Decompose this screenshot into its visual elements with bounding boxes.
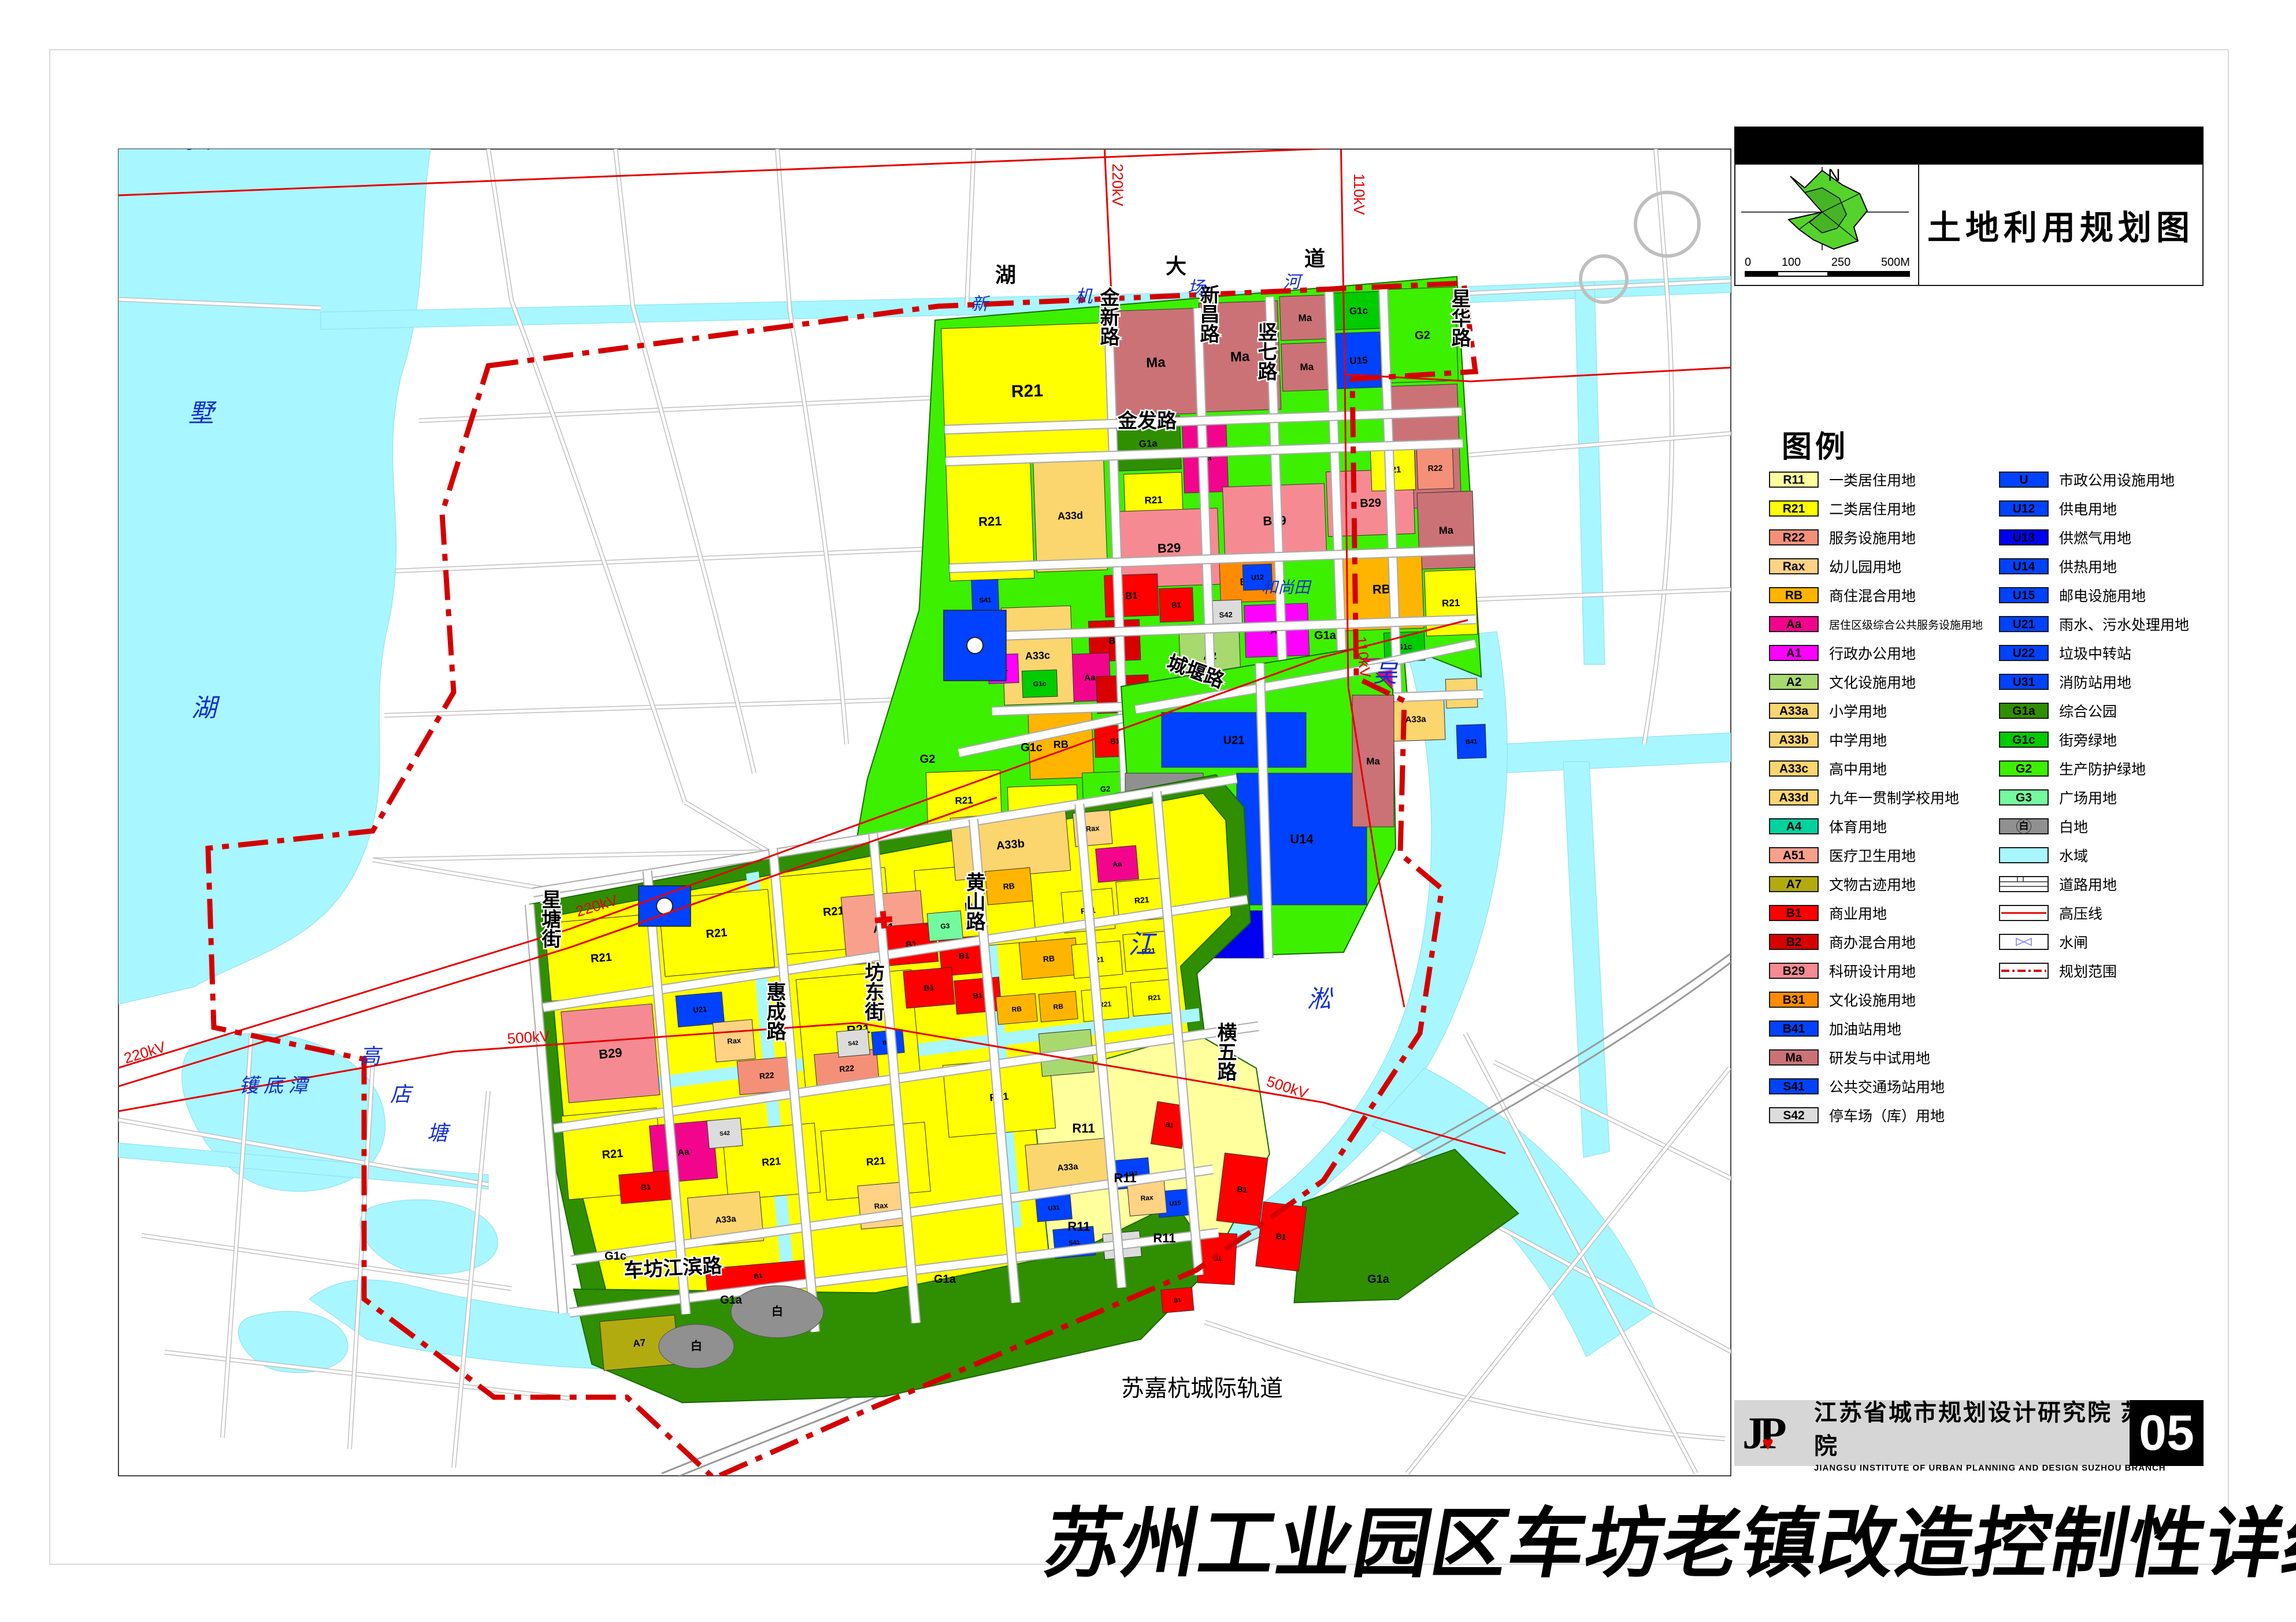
parcel-code: R11 xyxy=(1067,1219,1090,1234)
legend-column-left: R11一类居住用地R21二类居住用地R22服务设施用地Rax幼儿园用地RB商住混… xyxy=(1769,465,1983,1130)
parcel: RB xyxy=(1019,938,1078,979)
scale-tick: 0 xyxy=(1745,256,1751,269)
map-label: 塘 xyxy=(427,1122,451,1145)
land-use-map: R21MaMaMaMaG1cG2U15MaR21A33dG1aAaR21B29B… xyxy=(49,51,1737,1478)
parcel-code: A33a xyxy=(1405,714,1426,725)
parcel: Aa xyxy=(1096,845,1139,882)
parcel-code: A33a xyxy=(1057,1161,1079,1173)
legend-label: 公共交通场站用地 xyxy=(1829,1076,1945,1097)
map-label: 道 xyxy=(1304,247,1325,270)
legend-label: 加油站用地 xyxy=(1829,1018,1901,1039)
legend-label: 水域 xyxy=(2059,845,2088,866)
legend-label: 商业用地 xyxy=(1829,903,1887,923)
parcel-code: B1 xyxy=(641,1182,651,1192)
legend-swatch: RB xyxy=(1769,587,1819,603)
parcel: B29 xyxy=(561,1004,660,1103)
parcel-code: A33c xyxy=(1025,649,1051,662)
legend-swatch: B29 xyxy=(1769,963,1819,979)
parcel-code: R21 xyxy=(1442,597,1460,609)
legend-swatch: R21 xyxy=(1769,500,1819,517)
map-label: 江 xyxy=(1128,930,1158,959)
legend-row: U13供燃气用地 xyxy=(1999,523,2189,552)
parcel: U14 xyxy=(1237,773,1367,905)
legend-swatch: A7 xyxy=(1769,876,1819,892)
legend-row: S41公共交通场站用地 xyxy=(1769,1072,1983,1101)
parcel-code: G2 xyxy=(1415,329,1430,342)
map-label: 店 xyxy=(390,1083,414,1106)
legend-row: U14供热用地 xyxy=(1999,552,2189,581)
legend-label: 生产防护绿地 xyxy=(2059,758,2146,779)
panel-header-bar xyxy=(1734,127,2204,164)
legend-swatch: A4 xyxy=(1769,818,1819,834)
parcel: Ma xyxy=(1352,695,1394,827)
legend-swatch: Aa xyxy=(1769,616,1819,632)
parcel-code: G1c xyxy=(1033,680,1047,688)
map-label: 高 xyxy=(359,1045,383,1068)
map-label: 500kV xyxy=(507,1027,551,1047)
parcel-code: S42 xyxy=(719,1130,730,1138)
parcel-code: R21 xyxy=(822,904,844,919)
panel-head: N 0100250500M 土地利用规划图 xyxy=(1734,164,2204,286)
parcel-code: B1 xyxy=(1237,1184,1248,1194)
legend-swatch: U21 xyxy=(1999,616,2049,632)
parcel-code: U21 xyxy=(693,1005,707,1015)
parcel: Rax xyxy=(713,1019,755,1062)
parcel-code: A33b xyxy=(996,837,1025,852)
map-label: 110kV xyxy=(1351,173,1368,215)
legend-row: U15邮电设施用地 xyxy=(1999,581,2189,610)
legend-label: 垃圾中转站 xyxy=(2059,643,2131,663)
legend-swatch: R22 xyxy=(1769,529,1819,545)
map-label: 湖 xyxy=(995,263,1016,287)
legend-row: B41加油站用地 xyxy=(1769,1014,1983,1043)
parcel-code: B29 xyxy=(598,1045,622,1061)
substation-icon xyxy=(967,637,983,654)
parcel-code: G3 xyxy=(940,922,950,930)
legend-row: 道路用地 xyxy=(1999,870,2189,899)
parcel-code: R21 xyxy=(761,1155,781,1168)
parcel-code: G1c xyxy=(1349,305,1368,317)
map-label: 新 xyxy=(971,295,991,314)
legend-label: 商住混合用地 xyxy=(1829,585,1916,606)
legend-row: U12供电用地 xyxy=(1999,494,2189,523)
map-label: 横五路 xyxy=(1214,1022,1237,1081)
parcel: G1c xyxy=(1331,291,1386,330)
parcel-code: R21 xyxy=(602,1147,624,1161)
legend-swatch: A33b xyxy=(1769,732,1819,748)
parcel-code: G1a xyxy=(720,1294,743,1306)
parcel-code: G2 xyxy=(1100,785,1111,794)
parcel: G1c xyxy=(1022,670,1058,697)
legend-heading: 图例 xyxy=(1782,422,1849,466)
legend-swatch: R11 xyxy=(1769,472,1819,488)
map-label: 竖七路 xyxy=(1255,322,1277,381)
compass-cell: N 0100250500M xyxy=(1735,165,1919,285)
parcel-code: R22 xyxy=(839,1063,855,1074)
parcel-code: Rax xyxy=(1085,823,1100,833)
parcel: B1 xyxy=(903,967,955,1008)
parcel-code: RB xyxy=(1043,953,1055,964)
legend-swatch: U14 xyxy=(1999,558,2049,574)
map-label: 星华路 xyxy=(1448,288,1471,347)
legend-row: A7文物古迹用地 xyxy=(1769,870,1983,899)
legend-swatch: Rax xyxy=(1769,558,1819,574)
legend-swatch: U31 xyxy=(1999,674,2049,690)
map-label: 墅 xyxy=(188,399,217,428)
parcel: G2 xyxy=(1387,287,1459,383)
parcel-code: U15 xyxy=(1349,355,1368,366)
parcel-code: U21 xyxy=(1223,734,1245,747)
legend-swatch: A33a xyxy=(1769,703,1819,719)
legend-swatch: A2 xyxy=(1769,674,1819,690)
drawing-title: 苏州工业园区车坊老镇改造控制性详细规划 xyxy=(1036,1482,2296,1593)
parcel-code: G1a xyxy=(1314,629,1337,642)
parcel-code: R21 xyxy=(955,795,973,806)
legend-swatch xyxy=(1999,847,2049,863)
map-label: 淞 xyxy=(1307,986,1334,1013)
legend-row: A33b中学用地 xyxy=(1769,725,1983,754)
parcel-code: 白 xyxy=(691,1339,702,1353)
legend-row: Ma研发与中试用地 xyxy=(1769,1043,1983,1072)
parcel-code: G1c xyxy=(1021,741,1043,754)
legend-row: A33a小学用地 xyxy=(1769,696,1983,725)
parcel-code: G2 xyxy=(920,753,936,766)
parcel: R21 xyxy=(941,323,1114,459)
legend-swatch xyxy=(1999,876,2049,892)
legend-row: S42停车场（库）用地 xyxy=(1769,1101,1983,1130)
legend-label: 小学用地 xyxy=(1829,700,1887,721)
parcel-code: R11 xyxy=(1072,1121,1095,1135)
legend-label: 科研设计用地 xyxy=(1829,960,1916,981)
parcel: Ma xyxy=(1281,342,1333,391)
north-label: N xyxy=(1828,166,1841,185)
parcel: RB xyxy=(985,867,1033,905)
legend-row: 规划范围 xyxy=(1999,956,2189,985)
parcel: B1 xyxy=(1104,574,1159,617)
parcel: U21 xyxy=(1162,712,1306,767)
legend-swatch: B31 xyxy=(1769,992,1819,1008)
legend-row: U22垃圾中转站 xyxy=(1999,639,2189,667)
legend-swatch: G2 xyxy=(1999,760,2049,777)
parcel-code: A33a xyxy=(715,1214,737,1226)
parcel-code: G1a xyxy=(1138,438,1158,450)
parcel-code: R21 xyxy=(590,951,612,966)
parcel-code: Rax xyxy=(874,1201,889,1211)
legend-label: 白地 xyxy=(2059,816,2088,837)
parcel-code: B1 xyxy=(973,991,983,1000)
legend-label: 供热用地 xyxy=(2059,556,2117,577)
map-label: 镬 底 潭 xyxy=(239,1075,311,1097)
legend-row: U21雨水、污水处理用地 xyxy=(1999,610,2189,639)
parcel-code: Ma xyxy=(1230,349,1250,365)
parcel: R21 xyxy=(1425,570,1478,636)
legend-swatch: B1 xyxy=(1769,905,1819,921)
parcel-code: B41 xyxy=(1466,738,1478,746)
parcel-code: B1 xyxy=(754,1272,763,1280)
parcel-code: B1 xyxy=(1165,1122,1174,1130)
parcel: Ma xyxy=(1279,295,1331,340)
parcel-code: R21 xyxy=(978,514,1002,529)
legend-swatch: U22 xyxy=(1999,645,2049,661)
parcel-code: B1 xyxy=(1171,600,1181,610)
legend-row: A2文化设施用地 xyxy=(1769,667,1983,696)
map-title: 土地利用规划图 xyxy=(1927,201,2194,249)
legend-row: 高压线 xyxy=(1999,899,2189,927)
map-label: 机 xyxy=(1075,287,1093,306)
map-label: 惠成路 xyxy=(763,982,786,1041)
map-label: 金发路 xyxy=(1117,410,1177,432)
compass-rose-icon: N xyxy=(1735,165,1917,251)
legend-label: 中学用地 xyxy=(1829,729,1887,750)
parcel-code: Ma xyxy=(1438,524,1454,536)
legend-label: 行政办公用地 xyxy=(1829,643,1916,663)
parcel-code: B1 xyxy=(1275,1231,1287,1242)
legend-label: 停车场（库）用地 xyxy=(1829,1105,1945,1126)
parcel: B1 xyxy=(1161,1287,1194,1313)
parcel-code: U14 xyxy=(1290,832,1314,847)
legend-label: 幼儿园用地 xyxy=(1829,556,1901,577)
parcel-code: Rax xyxy=(727,1036,742,1046)
legend-label: 体育用地 xyxy=(1829,816,1887,837)
legend-row: G1c街旁绿地 xyxy=(1999,725,2189,754)
legend-row: U31消防站用地 xyxy=(1999,667,2189,696)
legend-swatch: 白 xyxy=(1999,818,2049,834)
legend-swatch: U xyxy=(1999,472,2049,488)
title-block-panel: N 0100250500M 土地利用规划图 图例 R11一类居住用地R21二类居… xyxy=(1734,127,2204,1468)
parcel: S42 xyxy=(837,1029,870,1057)
parcel: Ma xyxy=(1417,491,1475,569)
parcel: RB xyxy=(996,993,1037,1025)
parcel: A33d xyxy=(1033,459,1108,572)
parcel: G3 xyxy=(927,911,963,941)
parcel-code: A33d xyxy=(1058,510,1084,522)
map-label: 和尚田 xyxy=(1262,579,1312,597)
parcel-code: R22 xyxy=(759,1070,774,1081)
legend-row: RB商住混合用地 xyxy=(1769,581,1983,610)
parcel-code: R11 xyxy=(1153,1231,1175,1245)
parcel-code: RB xyxy=(1003,881,1015,892)
legend-label: 供电用地 xyxy=(2059,498,2117,519)
parcel-code: Ma xyxy=(1146,355,1166,371)
scale-ticks: 0100250500M xyxy=(1745,256,1910,269)
legend-swatch: G1a xyxy=(1999,703,2049,719)
parcel: B1 xyxy=(1159,588,1194,622)
parcel-code: RB xyxy=(1053,1002,1064,1011)
legend-label: 文化设施用地 xyxy=(1829,671,1916,692)
plan-sheet: { "title_block": { "map_title": "土地利用规划图… xyxy=(0,0,2296,1622)
legend-row: B2商办混合用地 xyxy=(1769,927,1983,956)
parcel-code: U31 xyxy=(1048,1204,1060,1212)
parcel-code: B1 xyxy=(1174,1297,1182,1304)
legend-swatch: S42 xyxy=(1769,1107,1819,1123)
parcel-code: U15 xyxy=(1169,1200,1181,1208)
legend-label: 广场用地 xyxy=(2059,787,2117,808)
legend-row: 白白地 xyxy=(1999,812,2189,841)
map-label: 吴 xyxy=(1373,661,1399,688)
parcel-code: 白 xyxy=(771,1304,783,1318)
parcel-code: B1 xyxy=(1125,590,1138,602)
parcel-code: G1a xyxy=(934,1273,956,1286)
parcel-code: R21 xyxy=(706,926,728,941)
legend-label: 邮电设施用地 xyxy=(2059,585,2146,606)
map-label: 星塘街 xyxy=(539,889,562,948)
parcel: S42 xyxy=(707,1118,743,1149)
parcel-code: Ma xyxy=(1366,756,1380,767)
legend-swatch: A33c xyxy=(1769,760,1819,777)
legend-swatch xyxy=(1999,905,2049,921)
legend-swatch: B2 xyxy=(1769,934,1819,950)
map-label: 220kV xyxy=(1109,164,1126,206)
parcel-code: R21 xyxy=(1148,993,1161,1003)
legend-label: 文化设施用地 xyxy=(1829,989,1916,1010)
scale-tick: 250 xyxy=(1831,256,1850,269)
parcel-code: Aa xyxy=(1084,673,1096,683)
legend-row: A33d九年一贯制学校用地 xyxy=(1769,783,1983,812)
legend-label: 研发与中试用地 xyxy=(1829,1047,1930,1068)
legend-label: 水闸 xyxy=(2059,931,2088,952)
legend-label: 高压线 xyxy=(2059,903,2102,923)
legend-label: 医疗卫生用地 xyxy=(1829,845,1916,866)
scale-tick: 100 xyxy=(1782,256,1801,269)
parcel: B1 xyxy=(1216,1153,1268,1226)
legend-swatch: B41 xyxy=(1769,1020,1819,1037)
institute-logo: JP ♥ xyxy=(1742,1407,1806,1459)
parcel-code: Aa xyxy=(677,1147,690,1158)
legend-swatch: U13 xyxy=(1999,529,2049,545)
legend-swatch: U15 xyxy=(1999,587,2049,603)
parcel: A33a xyxy=(1386,697,1445,741)
parcel-code: S42 xyxy=(848,1040,859,1048)
legend-swatch: S41 xyxy=(1769,1078,1819,1094)
legend-label: 道路用地 xyxy=(2059,874,2117,894)
legend-label: 居住区级综合公共服务设施用地 xyxy=(1829,617,1983,632)
parcel-code: R21 xyxy=(1011,381,1043,402)
legend-row: Aa居住区级综合公共服务设施用地 xyxy=(1769,610,1983,639)
legend-label: 综合公园 xyxy=(2059,700,2117,721)
legend-swatch: Ma xyxy=(1769,1049,1819,1066)
parcel-code: B29 xyxy=(1360,496,1381,510)
legend-label: 商办混合用地 xyxy=(1829,931,1916,952)
parcel-code: Aa xyxy=(1112,859,1123,868)
parcel-code: RB xyxy=(1011,1005,1022,1014)
legend-row: A1行政办公用地 xyxy=(1769,639,1983,667)
parcel: B1 xyxy=(619,1171,673,1204)
legend-row: G3广场用地 xyxy=(1999,783,2189,812)
legend-row: 水闸 xyxy=(1999,927,2189,956)
scale-tick: 500M xyxy=(1881,256,1910,269)
page-number: 05 xyxy=(2130,1400,2204,1466)
parcel-code: G1a xyxy=(1367,1273,1390,1286)
parcel-code: R21 xyxy=(1144,494,1163,506)
parcel-code: Ma xyxy=(1298,312,1312,324)
map-label: 坊东街 xyxy=(862,962,885,1021)
parcel-code: B29 xyxy=(1157,540,1181,555)
parcel-code: R21 xyxy=(1134,894,1149,905)
legend-row: A4体育用地 xyxy=(1769,812,1983,841)
parcel-code: B1 xyxy=(923,982,934,993)
legend-label: 九年一贯制学校用地 xyxy=(1829,787,1959,808)
legend-row: R11一类居住用地 xyxy=(1769,465,1983,494)
parcel-code: B1 xyxy=(958,951,969,961)
legend-label: 规划范围 xyxy=(2059,960,2117,981)
legend-row: G2生产防护绿地 xyxy=(1999,754,2189,783)
parcel: R21 xyxy=(1081,987,1129,1022)
map-label: 独 xyxy=(186,125,213,154)
parcel: R22 xyxy=(1416,447,1453,489)
map-label: 苏嘉杭城际轨道 xyxy=(1121,1376,1283,1401)
legend-label: 一类居住用地 xyxy=(1829,469,1916,490)
legend-swatch xyxy=(1999,934,2049,950)
legend-swatch xyxy=(1999,963,2049,979)
legend-label: 市政公用设施用地 xyxy=(2059,469,2175,490)
scale-bar-segments xyxy=(1745,271,1910,277)
legend-swatch: A33d xyxy=(1769,789,1819,806)
legend-row: R22服务设施用地 xyxy=(1769,523,1983,552)
legend-label: 雨水、污水处理用地 xyxy=(2059,614,2189,634)
parcel-code: RB xyxy=(1372,582,1391,597)
parcel-code: S42 xyxy=(1219,610,1233,619)
legend-label: 服务设施用地 xyxy=(1829,527,1916,548)
legend-row: B31文化设施用地 xyxy=(1769,985,1983,1014)
legend-row: R21二类居住用地 xyxy=(1769,494,1983,523)
parcel-code: Ma xyxy=(1300,361,1314,373)
legend-row: 水域 xyxy=(1999,841,2189,870)
legend-label: 文物古迹用地 xyxy=(1829,874,1916,894)
legend-label: 供燃气用地 xyxy=(2059,527,2131,548)
title-cell: 土地利用规划图 xyxy=(1919,165,2202,285)
parcel-code: R22 xyxy=(1427,463,1442,473)
legend-swatch: A51 xyxy=(1769,847,1819,863)
legend-row: U市政公用设施用地 xyxy=(1999,465,2189,494)
map-label: 黄山路 xyxy=(963,872,985,931)
legend-row: A51医疗卫生用地 xyxy=(1769,841,1983,870)
map-label: 金新路 xyxy=(1097,287,1120,346)
panel-footer: JP ♥ 江苏省城市规划设计研究院 苏州分院 JIANGSU INSTITUTE… xyxy=(1734,1400,2204,1466)
parcel: Ma xyxy=(1111,308,1200,416)
map-label: 场 xyxy=(1188,279,1207,298)
parcel-code: A7 xyxy=(633,1337,646,1349)
logo-heart-icon: ♥ xyxy=(1762,1432,1774,1455)
legend-row: B29科研设计用地 xyxy=(1769,956,1983,985)
parcel-code: R11 xyxy=(1114,1171,1136,1185)
map-label: 大 xyxy=(1166,254,1186,278)
parcel: RB xyxy=(1038,991,1078,1022)
legend-swatch: U12 xyxy=(1999,500,2049,517)
parcel-code: S41 xyxy=(979,596,992,604)
map-canvas: R21MaMaMaMaG1cG2U15MaR21A33dG1aAaR21B29B… xyxy=(49,51,1737,1478)
parcel-code: Rax xyxy=(1140,1193,1153,1202)
legend-row: A33c高中用地 xyxy=(1769,754,1983,783)
legend-swatch: G1c xyxy=(1999,732,2049,748)
legend-row: Rax幼儿园用地 xyxy=(1769,552,1983,581)
legend-column-right: U市政公用设施用地U12供电用地U13供燃气用地U14供热用地U15邮电设施用地… xyxy=(1999,465,2189,985)
legend-label: 街旁绿地 xyxy=(2059,729,2117,750)
legend-label: 二类居住用地 xyxy=(1829,498,1916,519)
map-label: 河 xyxy=(1283,273,1303,292)
legend-row: B1商业用地 xyxy=(1769,899,1983,927)
map-label: 湖 xyxy=(191,694,220,722)
legend-swatch: A1 xyxy=(1769,645,1819,661)
legend-row: G1a综合公园 xyxy=(1999,696,2189,725)
parcel-code: R21 xyxy=(866,1155,886,1168)
legend-label: 高中用地 xyxy=(1829,758,1887,779)
parcel: U21 xyxy=(676,992,724,1027)
legend-swatch: G3 xyxy=(1999,789,2049,806)
legend-label: 消防站用地 xyxy=(2059,671,2131,692)
parcel: B41 xyxy=(1456,724,1486,759)
scale-bar: 0100250500M xyxy=(1745,256,1910,277)
